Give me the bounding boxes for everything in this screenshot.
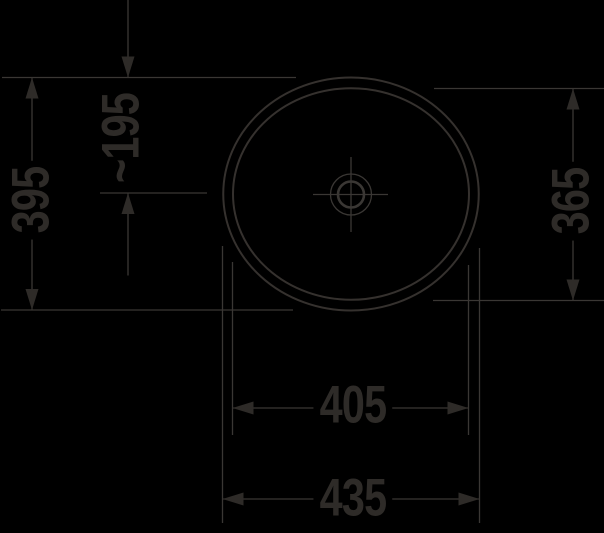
- drain-symbol: [313, 157, 388, 232]
- dim-label-405: 405: [313, 379, 392, 432]
- dim-label-435: 435: [313, 472, 392, 525]
- dim-405-arrow-right: [448, 402, 469, 415]
- dim-label-365: 365: [545, 161, 598, 240]
- dim-195-arrow-down: [122, 57, 135, 78]
- dim-395-arrow-down: [26, 289, 39, 310]
- dim-365-arrow-down: [567, 280, 580, 301]
- dim-405-arrow-left: [233, 402, 254, 415]
- dim-195-arrow-up: [122, 193, 135, 214]
- basin-drawing: [0, 0, 604, 533]
- technical-drawing-canvas: 395 ~195 365 405 435: [0, 0, 604, 533]
- dim-435-arrow-left: [223, 493, 244, 506]
- dim-label-195: ~195: [95, 87, 148, 189]
- dim-395-arrow-up: [26, 78, 39, 99]
- dim-365-arrow-up: [567, 89, 580, 110]
- dim-label-395: 395: [5, 160, 58, 239]
- dim-435-arrow-right: [459, 493, 480, 506]
